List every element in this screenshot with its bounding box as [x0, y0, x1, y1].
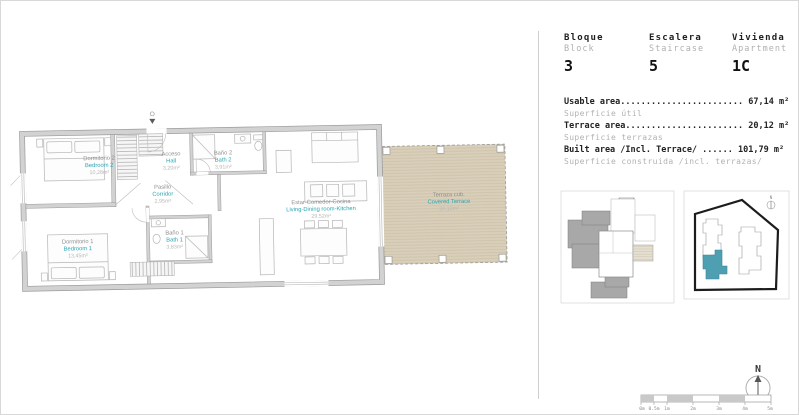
svg-text:20,12m²: 20,12m² [439, 206, 459, 212]
terrace-area-sub: Superficie terrazas [564, 132, 794, 143]
room-label-bath-1: Baño 1 Bath 1 3,83m² [165, 230, 184, 250]
svg-text:Pasillo: Pasillo [154, 185, 171, 191]
room-label-bath-2: Baño 2 Bath 2 3,91m² [214, 150, 233, 170]
apartment-label-es: Vivienda [732, 33, 787, 43]
unit-field-staircase: Escalera Staircase 5 [649, 33, 704, 75]
built-area-value: 101,79 m² [733, 145, 784, 155]
areas-table: Usable area........................ 67,1… [564, 97, 794, 169]
svg-text:Covered Terrace: Covered Terrace [428, 199, 471, 206]
room-label-corridor: Pasillo Corridor 2,95m² [152, 184, 173, 204]
svg-text:Acceso: Acceso [161, 151, 180, 157]
bedroom1-door-gap [146, 208, 149, 222]
block-label-es: Bloque [564, 33, 604, 43]
staircase-label-en: Staircase [649, 44, 704, 54]
svg-text:2,95m²: 2,95m² [154, 199, 171, 205]
svg-text:Baño 1: Baño 1 [165, 230, 183, 236]
usable-area-row: Usable area........................ 67,1… [564, 97, 794, 108]
svg-text:29,52m²: 29,52m² [311, 213, 331, 219]
staircase-label-es: Escalera [649, 33, 704, 43]
info-panel: Bloque Block 3 Escalera Staircase 5 Vivi… [538, 1, 798, 414]
svg-text:Baño 2: Baño 2 [214, 150, 232, 156]
svg-text:Dormitorio 2: Dormitorio 2 [83, 156, 115, 163]
entry-marker-icon [149, 112, 155, 124]
dining-table [300, 220, 347, 264]
usable-area-value: 67,14 m² [743, 97, 789, 107]
unit-field-block: Bloque Block 3 [564, 33, 604, 75]
svg-text:Corridor: Corridor [152, 191, 173, 197]
terrace-area-value: 20,12 m² [743, 121, 789, 131]
svg-text:Bedroom 2: Bedroom 2 [85, 163, 113, 170]
svg-text:13,45m²: 13,45m² [68, 253, 88, 259]
bath2-door-gap [196, 172, 208, 175]
built-area-row: Built area /Incl. Terrace/ ...... 101,79… [564, 145, 794, 156]
apartment-value: 1C [732, 57, 787, 75]
svg-text:Terraza cub.: Terraza cub. [433, 192, 465, 199]
svg-text:3,20m²: 3,20m² [163, 165, 180, 171]
block-label-en: Block [564, 44, 604, 54]
floorplan-sheet: Dormitorio 2 Bedroom 2 10,28m² Acceso Ha… [0, 0, 799, 415]
svg-text:Bath 1: Bath 1 [166, 237, 183, 243]
usable-area-sub: Superficie útil [564, 108, 794, 119]
terrace-area-label: Terrace area [564, 121, 625, 131]
svg-text:10,28m²: 10,28m² [89, 170, 109, 176]
floor-plan: Dormitorio 2 Bedroom 2 10,28m² Acceso Ha… [9, 105, 507, 292]
svg-text:Living-Dining room-Kitchen: Living-Dining room-Kitchen [286, 206, 356, 213]
leader-dots: ........................ [620, 97, 743, 107]
leader-dots: ....................... [625, 121, 743, 131]
apartment-label-en: Apartment [732, 44, 787, 54]
kitchen-counter [259, 219, 274, 275]
svg-text:3,83m²: 3,83m² [166, 244, 183, 250]
room-label-living: Estar-Comedor-Cocina Living-Dining room-… [286, 199, 356, 220]
svg-text:Estar-Comedor-Cocina: Estar-Comedor-Cocina [291, 199, 351, 206]
block-value: 3 [564, 57, 604, 75]
staircase-value: 5 [649, 57, 704, 75]
built-area-sub: Superficie construida /incl. terrazas/ [564, 156, 794, 167]
unit-field-apartment: Vivienda Apartment 1C [732, 33, 787, 75]
svg-text:Dormitorio 1: Dormitorio 1 [62, 239, 94, 246]
usable-area-label: Usable area [564, 97, 620, 107]
svg-text:Bath 2: Bath 2 [215, 157, 232, 163]
svg-text:3,91m²: 3,91m² [215, 164, 232, 170]
leader-dots: ...... [702, 145, 733, 155]
built-area-label: Built area /Incl. Terrace/ [564, 145, 702, 155]
terrace-area-row: Terrace area....................... 20,1… [564, 121, 794, 132]
svg-text:Bedroom 1: Bedroom 1 [64, 246, 92, 253]
sofa [276, 132, 359, 173]
svg-text:Hall: Hall [166, 158, 176, 164]
room-label-hall: Acceso Hall 3,20m² [161, 151, 180, 171]
